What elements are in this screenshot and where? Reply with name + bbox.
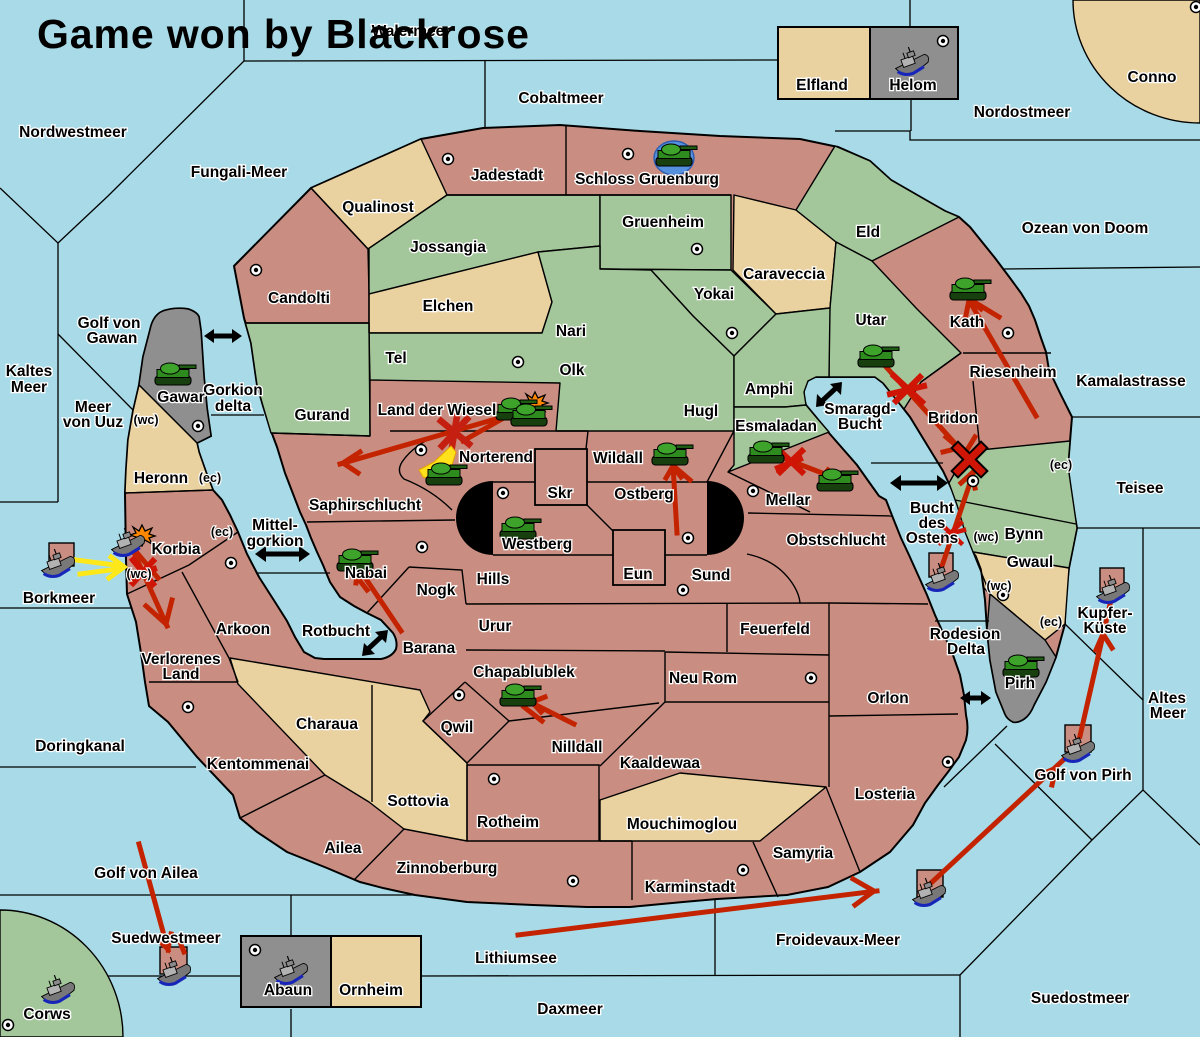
svg-text:Eld: Eld <box>856 224 880 241</box>
svg-text:Sund: Sund <box>692 567 731 584</box>
svg-text:Kentommenai: Kentommenai <box>207 756 310 773</box>
svg-text:Wildall: Wildall <box>593 450 643 467</box>
svg-text:Pirh: Pirh <box>1005 675 1035 692</box>
svg-text:Nordostmeer: Nordostmeer <box>974 104 1070 121</box>
svg-text:Bynn: Bynn <box>1005 526 1044 543</box>
svg-text:Ostberg: Ostberg <box>614 486 673 503</box>
svg-text:Ostens: Ostens <box>906 530 959 547</box>
svg-text:Rotbucht: Rotbucht <box>302 623 370 640</box>
svg-text:Jossangia: Jossangia <box>410 239 486 256</box>
svg-text:Ailea: Ailea <box>324 840 361 857</box>
svg-text:Karminstadt: Karminstadt <box>645 879 735 896</box>
svg-text:Norterend: Norterend <box>459 449 533 466</box>
svg-text:Orlon: Orlon <box>867 690 908 707</box>
svg-text:Helom: Helom <box>889 77 936 94</box>
svg-text:Hugl: Hugl <box>684 403 718 420</box>
svg-text:Feuerfeld: Feuerfeld <box>740 621 810 638</box>
svg-text:Daxmeer: Daxmeer <box>537 1001 603 1018</box>
svg-text:gorkion: gorkion <box>247 533 304 550</box>
svg-text:Nari: Nari <box>556 323 586 340</box>
svg-text:Zinnoberburg: Zinnoberburg <box>397 860 498 877</box>
svg-text:Küste: Küste <box>1083 620 1126 637</box>
svg-text:Nilldall: Nilldall <box>552 739 603 756</box>
svg-text:Froidevaux-Meer: Froidevaux-Meer <box>776 932 900 949</box>
svg-text:von Uuz: von Uuz <box>63 414 124 431</box>
svg-text:Losteria: Losteria <box>855 786 916 803</box>
svg-text:Nordwestmeer: Nordwestmeer <box>19 124 127 141</box>
svg-text:Candolti: Candolti <box>268 290 330 307</box>
svg-text:Gruenheim: Gruenheim <box>622 214 704 231</box>
svg-text:Charaua: Charaua <box>296 716 358 733</box>
svg-text:Suedostmeer: Suedostmeer <box>1031 990 1129 1007</box>
svg-text:Land: Land <box>162 666 199 683</box>
svg-text:(wc): (wc) <box>974 530 999 544</box>
svg-text:Nabai: Nabai <box>345 565 387 582</box>
svg-text:Korbia: Korbia <box>151 541 200 558</box>
svg-text:Amphi: Amphi <box>745 381 793 398</box>
svg-text:Abaun: Abaun <box>264 982 312 999</box>
svg-text:(ec): (ec) <box>1040 615 1062 629</box>
svg-text:Elchen: Elchen <box>423 298 474 315</box>
svg-text:Sottovia: Sottovia <box>387 793 449 810</box>
svg-text:Esmaladan: Esmaladan <box>735 418 817 435</box>
svg-text:Ornheim: Ornheim <box>339 982 403 999</box>
svg-text:delta: delta <box>215 398 252 415</box>
svg-text:Westberg: Westberg <box>502 536 572 553</box>
svg-text:Gawar: Gawar <box>157 389 204 406</box>
svg-text:Teisee: Teisee <box>1116 480 1163 497</box>
svg-text:Bucht: Bucht <box>838 416 882 433</box>
svg-text:Arkoon: Arkoon <box>216 621 270 638</box>
svg-text:Gorkion: Gorkion <box>203 382 262 399</box>
svg-text:Gwaul: Gwaul <box>1007 554 1054 571</box>
svg-text:Suedwestmeer: Suedwestmeer <box>111 930 220 947</box>
svg-text:Golf von Pirh: Golf von Pirh <box>1034 767 1131 784</box>
svg-text:Doringkanal: Doringkanal <box>35 738 125 755</box>
svg-text:Golf von Ailea: Golf von Ailea <box>94 865 198 882</box>
svg-text:Land der Wiesel: Land der Wiesel <box>378 402 497 419</box>
svg-text:Schloss Gruenburg: Schloss Gruenburg <box>575 171 719 188</box>
svg-text:Meer: Meer <box>11 379 47 396</box>
svg-text:Lithiumsee: Lithiumsee <box>475 950 557 967</box>
svg-text:Borkmeer: Borkmeer <box>23 590 95 607</box>
svg-text:Cobaltmeer: Cobaltmeer <box>518 90 603 107</box>
svg-text:Ozean von Doom: Ozean von Doom <box>1022 220 1149 237</box>
svg-text:Yokai: Yokai <box>694 286 734 303</box>
svg-text:(ec): (ec) <box>1050 458 1072 472</box>
svg-text:Eun: Eun <box>623 566 652 583</box>
svg-text:Urur: Urur <box>479 618 512 635</box>
svg-text:Chapablublek: Chapablublek <box>473 664 575 681</box>
svg-text:Heronn: Heronn <box>134 470 188 487</box>
svg-text:Saphirschlucht: Saphirschlucht <box>309 497 421 514</box>
svg-text:Tel: Tel <box>385 350 406 367</box>
svg-text:(wc): (wc) <box>134 413 159 427</box>
svg-text:Mouchimoglou: Mouchimoglou <box>627 816 737 833</box>
svg-text:Qualinost: Qualinost <box>342 199 413 216</box>
svg-text:(ec): (ec) <box>199 471 221 485</box>
svg-text:Riesenheim: Riesenheim <box>969 364 1056 381</box>
svg-text:Kaaldewaa: Kaaldewaa <box>620 755 701 772</box>
svg-text:Caraveccia: Caraveccia <box>743 266 825 283</box>
svg-text:Jadestadt: Jadestadt <box>471 167 543 184</box>
svg-text:Conno: Conno <box>1127 69 1176 86</box>
svg-text:Mellar: Mellar <box>766 492 811 509</box>
svg-text:Obstschlucht: Obstschlucht <box>786 532 885 549</box>
svg-text:Gawan: Gawan <box>87 330 138 347</box>
svg-text:(ec): (ec) <box>211 525 233 539</box>
svg-text:Elfland: Elfland <box>796 77 848 94</box>
svg-text:Corws: Corws <box>23 1006 70 1023</box>
svg-text:Bridon: Bridon <box>928 410 978 427</box>
svg-text:Neu Rom: Neu Rom <box>669 670 737 687</box>
svg-text:Utar: Utar <box>855 312 886 329</box>
svg-text:Olk: Olk <box>560 362 585 379</box>
svg-text:Hills: Hills <box>477 571 510 588</box>
svg-text:Qwil: Qwil <box>441 719 474 736</box>
svg-text:Fungali-Meer: Fungali-Meer <box>191 164 287 181</box>
svg-text:Game won by Blackrose: Game won by Blackrose <box>37 11 530 57</box>
svg-text:Meer: Meer <box>1150 705 1186 722</box>
svg-text:Rotheim: Rotheim <box>477 814 539 831</box>
svg-text:Kath: Kath <box>950 314 984 331</box>
svg-text:Skr: Skr <box>548 485 573 502</box>
svg-text:Samyria: Samyria <box>773 845 834 862</box>
svg-text:Kamalastrasse: Kamalastrasse <box>1076 373 1186 390</box>
svg-text:(wc): (wc) <box>127 567 152 581</box>
svg-text:Mittel-: Mittel- <box>252 517 298 534</box>
svg-text:Barana: Barana <box>403 640 456 657</box>
svg-text:Nogk: Nogk <box>417 582 456 599</box>
svg-text:(wc): (wc) <box>987 579 1012 593</box>
svg-text:Gurand: Gurand <box>294 407 349 424</box>
svg-text:Kaltes: Kaltes <box>6 363 53 380</box>
svg-text:Delta: Delta <box>947 641 985 658</box>
